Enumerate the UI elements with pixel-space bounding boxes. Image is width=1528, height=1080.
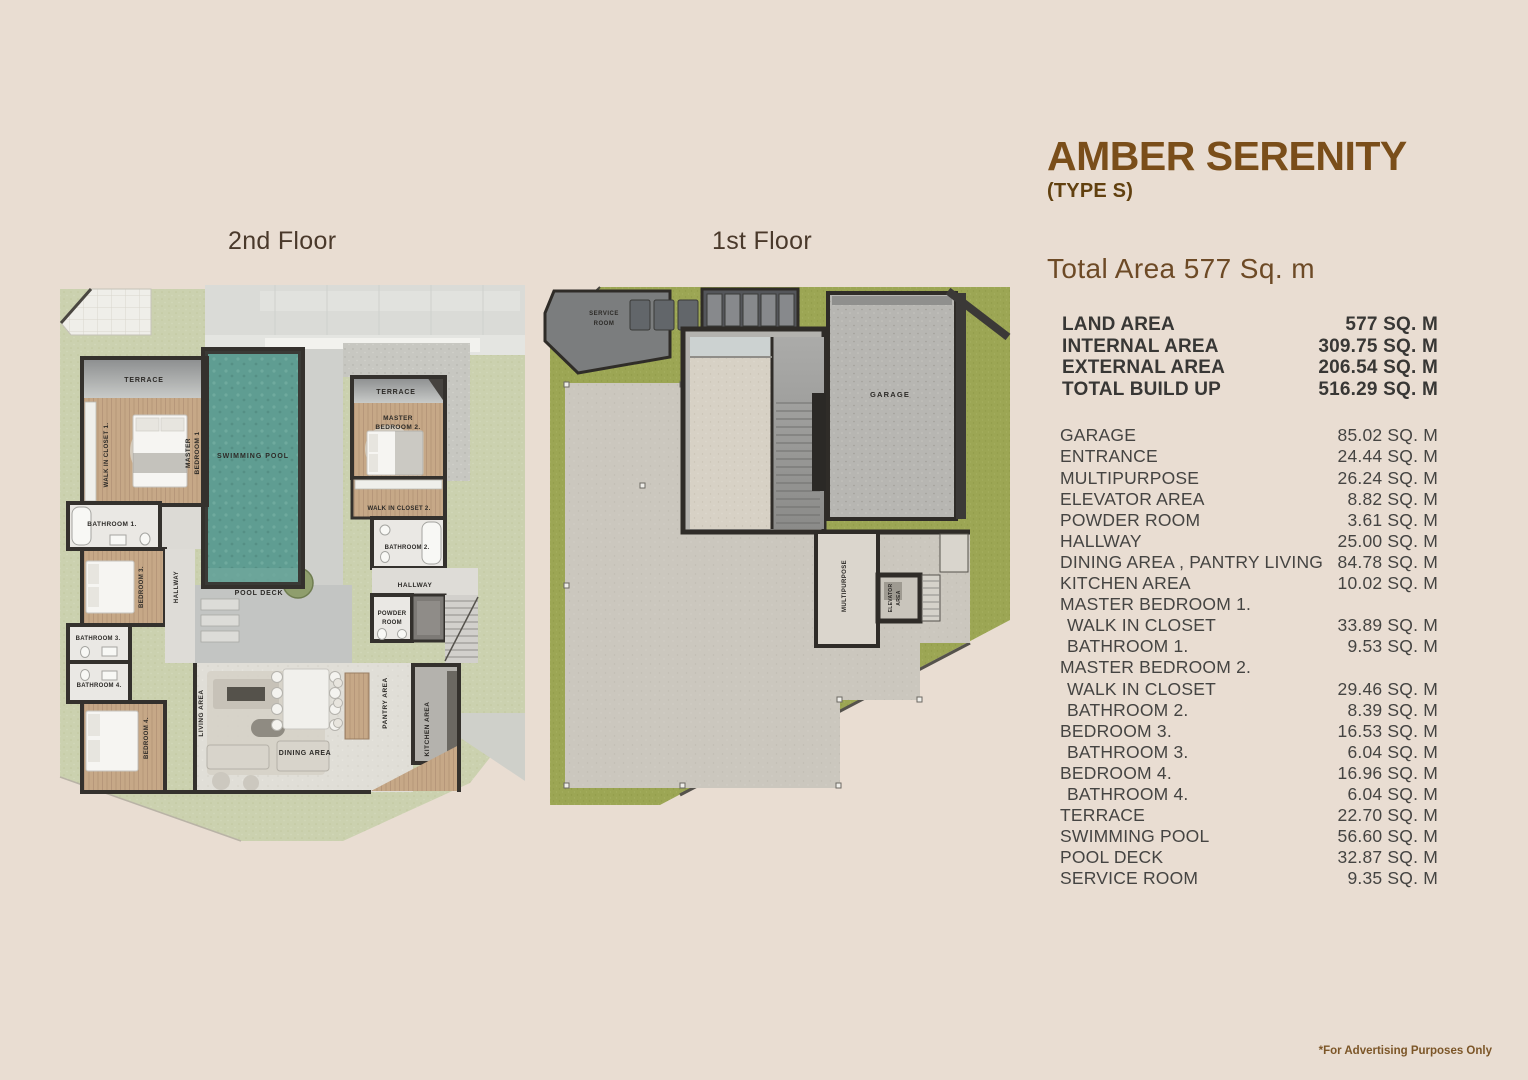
- entrance-stairs: [922, 575, 940, 621]
- service-room: [545, 291, 670, 373]
- total-area: Total Area 577 Sq. m: [1047, 253, 1439, 285]
- bedroom-4-label: BEDROOM 4.: [144, 717, 150, 759]
- area-row: BATHROOM 1.9.53 SQ. M: [1060, 636, 1438, 657]
- hallway-left: [165, 549, 195, 663]
- bathroom-3: [68, 625, 130, 662]
- dining-area-label: DINING AREA: [279, 750, 332, 757]
- garage-label: GARAGE: [870, 390, 910, 399]
- area-row: MASTER BEDROOM 1.: [1060, 594, 1438, 615]
- bathroom-4-label: BATHROOM 4.: [77, 683, 122, 689]
- area-table: GARAGE85.02 SQ. M ENTRANCE24.44 SQ. M MU…: [1060, 425, 1438, 889]
- service-room-label-line1: SERVICE: [589, 311, 619, 317]
- garage: [828, 293, 956, 519]
- swimming-pool-label: SWIMMING POOL: [217, 453, 289, 460]
- area-row: MASTER BEDROOM 2.: [1060, 657, 1438, 678]
- area-row: BATHROOM 4.6.04 SQ. M: [1060, 784, 1438, 805]
- master-bedroom-2-label-line2: BEDROOM 2.: [375, 424, 420, 431]
- multipurpose-label: MULTIPURPOSE: [842, 560, 848, 612]
- kitchen-island: [345, 673, 369, 739]
- powder-room-label-line1: POWDER: [378, 611, 407, 617]
- bathroom-4: [68, 662, 130, 702]
- walk-in-closet-1-label: WALK IN CLOSET 1.: [104, 423, 110, 488]
- area-row: BATHROOM 3.6.04 SQ. M: [1060, 742, 1438, 763]
- bathroom-3-label: BATHROOM 3.: [76, 636, 121, 642]
- area-row: POOL DECK32.87 SQ. M: [1060, 847, 1438, 868]
- stairs: [445, 595, 478, 663]
- area-row: SERVICE ROOM9.35 SQ. M: [1060, 868, 1438, 889]
- entrance-building: [683, 329, 826, 532]
- dining-table: [283, 669, 329, 729]
- service-room-label-line2: ROOM: [594, 321, 615, 327]
- elevator-area-label-line2: AREA: [896, 590, 902, 605]
- summary-row: INTERNAL AREA309.75 SQ. M: [1062, 336, 1438, 358]
- type-label: (TYPE S): [1047, 180, 1439, 203]
- living-area-label: LIVING AREA: [198, 689, 205, 736]
- area-row: HALLWAY25.00 SQ. M: [1060, 531, 1438, 552]
- area-row: TERRACE22.70 SQ. M: [1060, 805, 1438, 826]
- walk-in-closet-2-label: WALK IN CLOSET 2.: [367, 506, 430, 512]
- info-panel: AMBER SERENITY (TYPE S) Total Area 577 S…: [1047, 136, 1439, 889]
- bathroom-2-label: BATHROOM 2.: [385, 545, 430, 551]
- second-floor-plan: SWIMMING POOL TERRACE WALK IN CLOSET 1. …: [55, 283, 530, 845]
- disclaimer: *For Advertising Purposes Only: [1319, 1045, 1492, 1057]
- page-title: AMBER SERENITY: [1047, 136, 1439, 177]
- area-row: KITCHEN AREA10.02 SQ. M: [1060, 573, 1438, 594]
- summary-table: LAND AREA577 SQ. M INTERNAL AREA309.75 S…: [1062, 314, 1438, 400]
- first-floor-plan: SERVICE ROOM GARAGE: [540, 283, 1015, 845]
- area-row: POWDER ROOM3.61 SQ. M: [1060, 510, 1438, 531]
- area-row: DINING AREA , PANTRY LIVING84.78 SQ. M: [1060, 552, 1438, 573]
- terrace-right-label: TERRACE: [376, 389, 415, 396]
- area-row: ELEVATOR AREA8.82 SQ. M: [1060, 489, 1438, 510]
- hallway-left-label: HALLWAY: [174, 571, 180, 603]
- bathroom-1-label: BATHROOM 1.: [87, 521, 136, 528]
- area-row: MULTIPURPOSE26.24 SQ. M: [1060, 468, 1438, 489]
- master-bedroom-1-label-line2: BEDROOM 1: [194, 432, 201, 475]
- second-floor-label: 2nd Floor: [228, 227, 336, 256]
- summary-row: TOTAL BUILD UP516.29 SQ. M: [1062, 379, 1438, 401]
- hallway-right-label: HALLWAY: [398, 582, 433, 589]
- summary-row: EXTERNAL AREA206.54 SQ. M: [1062, 357, 1438, 379]
- brochure-page: 2nd Floor 1st Floor: [0, 0, 1528, 1080]
- summary-row: LAND AREA577 SQ. M: [1062, 314, 1438, 336]
- bedroom-3-label: BEDROOM 3.: [139, 566, 145, 608]
- terrace-left-label: TERRACE: [124, 377, 163, 384]
- elevator-area-label-line1: ELEVATOR: [888, 584, 894, 613]
- powder-room-label-line2: ROOM: [382, 620, 402, 626]
- master-bedroom-2-label-line1: MASTER: [383, 415, 413, 422]
- garage-side-wall: [956, 293, 966, 519]
- master-bedroom-1-label-line1: MASTER: [185, 438, 192, 468]
- area-row: BATHROOM 2.8.39 SQ. M: [1060, 700, 1438, 721]
- area-row: BEDROOM 4.16.96 SQ. M: [1060, 763, 1438, 784]
- area-row: WALK IN CLOSET29.46 SQ. M: [1060, 679, 1438, 700]
- area-row: WALK IN CLOSET33.89 SQ. M: [1060, 615, 1438, 636]
- area-row: ENTRANCE24.44 SQ. M: [1060, 446, 1438, 467]
- area-row: GARAGE85.02 SQ. M: [1060, 425, 1438, 446]
- area-row: BEDROOM 3.16.53 SQ. M: [1060, 721, 1438, 742]
- area-row: SWIMMING POOL56.60 SQ. M: [1060, 826, 1438, 847]
- pantry-area-label: PANTRY AREA: [382, 677, 389, 728]
- pool-deck-label: POOL DECK: [235, 590, 284, 597]
- kitchen-area-label: KITCHEN AREA: [424, 702, 431, 757]
- first-floor-label: 1st Floor: [712, 227, 812, 256]
